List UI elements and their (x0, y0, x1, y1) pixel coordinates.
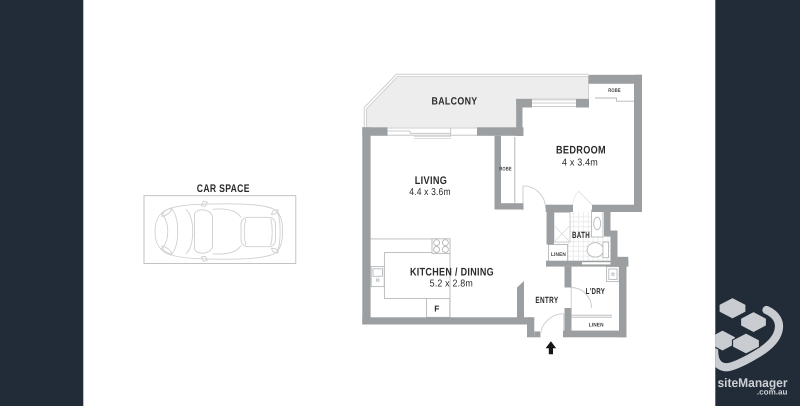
svg-text:4.4 x 3.6m: 4.4 x 3.6m (409, 187, 451, 198)
svg-text:LINEN: LINEN (589, 322, 604, 328)
svg-text:.com.au: .com.au (757, 388, 788, 397)
svg-text:ROBE: ROBE (608, 88, 621, 94)
svg-text:BEDROOM: BEDROOM (556, 145, 606, 157)
svg-text:ENTRY: ENTRY (535, 295, 558, 305)
svg-text:BATH: BATH (572, 230, 590, 240)
svg-text:5.2 x 2.8m: 5.2 x 2.8m (430, 279, 473, 290)
svg-text:LINEN: LINEN (551, 252, 566, 258)
svg-text:LIVING: LIVING (415, 175, 448, 187)
svg-text:F: F (434, 303, 440, 313)
svg-text:L'DRY: L'DRY (586, 286, 606, 296)
svg-text:4 x 3.4m: 4 x 3.4m (562, 158, 598, 169)
svg-text:BALCONY: BALCONY (432, 95, 478, 107)
svg-text:CAR SPACE: CAR SPACE (197, 183, 250, 195)
svg-text:KITCHEN / DINING: KITCHEN / DINING (410, 266, 494, 278)
svg-text:ROBE: ROBE (499, 166, 512, 172)
